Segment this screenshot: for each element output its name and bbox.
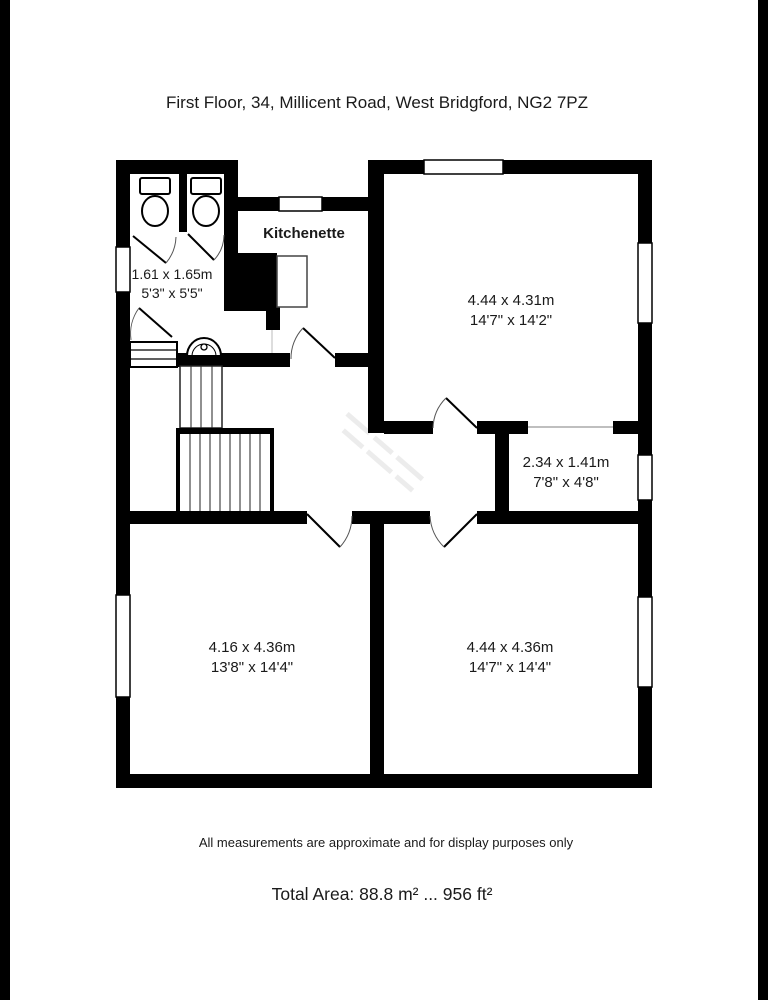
floorplan-page: First Floor, 34, Millicent Road, West Br… — [0, 0, 768, 1000]
room-dim-imperial: 7'8" x 4'8" — [523, 473, 610, 493]
window-icon — [638, 597, 652, 687]
door-icon — [433, 398, 477, 428]
stairs — [176, 366, 274, 511]
toilet-icon — [140, 178, 170, 226]
window-icon — [279, 197, 322, 211]
door-icon — [430, 514, 477, 547]
total-area-text: Total Area: 88.8 m² ... 956 ft² — [272, 884, 493, 905]
window-icon — [116, 247, 130, 292]
room-label-kitchenette: Kitchenette — [263, 225, 345, 242]
room-label-wc-lobby: 1.61 x 1.65m 5'3" x 5'5" — [132, 265, 213, 303]
window-icon — [638, 243, 652, 323]
room-dim-imperial: 14'7" x 14'4" — [467, 658, 554, 678]
door-icon — [188, 234, 224, 260]
room-dim-metric: 4.44 x 4.31m — [468, 291, 555, 311]
sink-icon — [184, 338, 224, 356]
door-icon — [131, 308, 172, 340]
toilet-icon — [191, 178, 221, 226]
disclaimer-text: All measurements are approximate and for… — [199, 835, 573, 850]
room-dim-metric: 2.34 x 1.41m — [523, 453, 610, 473]
room-dim-metric: 1.61 x 1.65m — [132, 265, 213, 284]
window-icon — [424, 160, 503, 174]
room-dim-imperial: 13'8" x 14'4" — [209, 658, 296, 678]
room-dim-metric: 4.44 x 4.36m — [467, 638, 554, 658]
radiator-icon — [130, 342, 177, 367]
floor-plan-drawing — [0, 0, 768, 1000]
room-dim-imperial: 5'3" x 5'5" — [132, 284, 213, 303]
door-icon — [307, 514, 352, 547]
room-label-bottom-right: 4.44 x 4.36m 14'7" x 14'4" — [467, 638, 554, 678]
room-dim-metric: 4.16 x 4.36m — [209, 638, 296, 658]
window-icon — [638, 455, 652, 500]
room-dim-imperial: 14'7" x 14'2" — [468, 311, 555, 331]
kitchen-counter-icon — [277, 256, 307, 307]
room-label-top-right: 4.44 x 4.31m 14'7" x 14'2" — [468, 291, 555, 331]
room-label-bottom-left: 4.16 x 4.36m 13'8" x 14'4" — [209, 638, 296, 678]
door-icon — [133, 236, 176, 263]
door-icon — [291, 328, 335, 359]
room-label-store: 2.34 x 1.41m 7'8" x 4'8" — [523, 453, 610, 493]
window-icon — [116, 595, 130, 697]
